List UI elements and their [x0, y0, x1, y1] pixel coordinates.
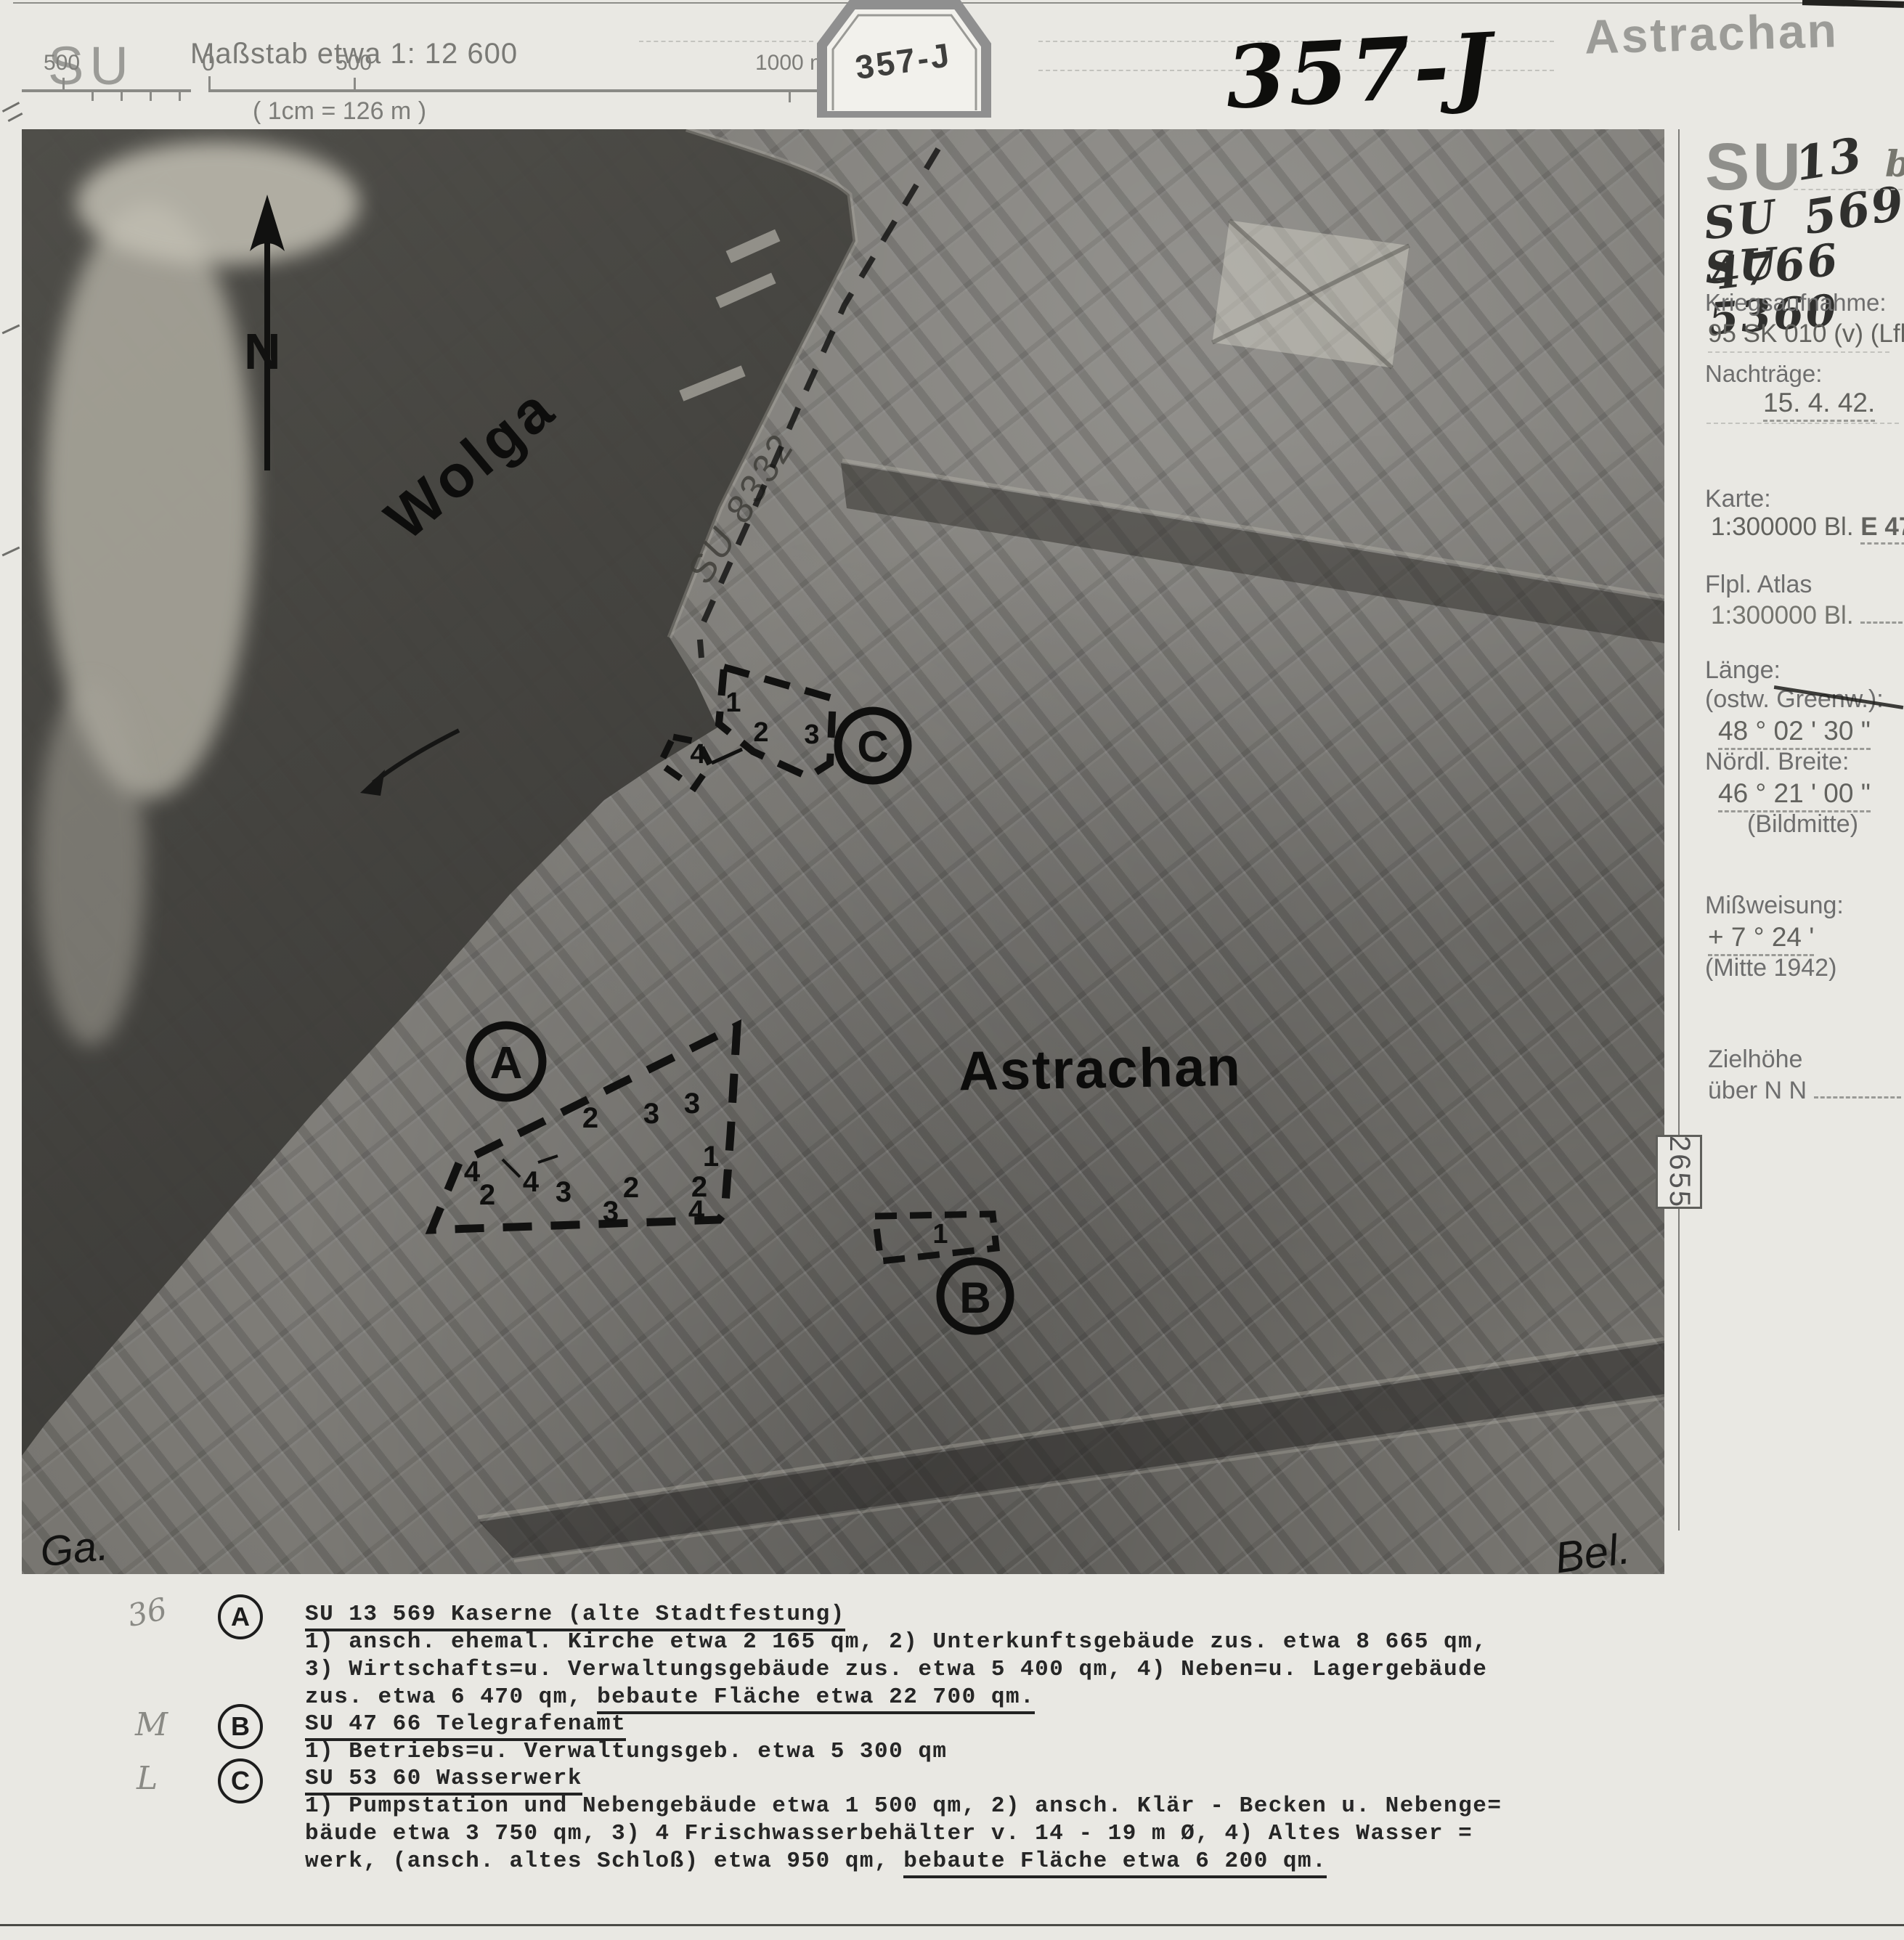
- area-a-number: 1: [703, 1141, 719, 1173]
- area-a-number: 3: [556, 1176, 571, 1208]
- area-a-number: 4: [523, 1166, 540, 1198]
- sidebar-divider: [1678, 129, 1680, 1531]
- north-letter: N: [244, 323, 281, 380]
- legend-circle-a: A: [218, 1594, 263, 1639]
- scale-tick: [789, 89, 791, 102]
- area-b-number: 1: [932, 1219, 948, 1250]
- scale-tick: [179, 89, 181, 101]
- canal-lower-bank: [514, 1398, 1664, 1561]
- scale-tick: [121, 89, 123, 101]
- area-c-number: 3: [804, 720, 819, 750]
- zielhoehe-blank: [1814, 1075, 1901, 1099]
- film-number-box: 2655: [1656, 1135, 1702, 1209]
- area-a-pointer: [538, 1156, 558, 1162]
- karte-line: 1:300000 Bl.: [1711, 513, 1854, 541]
- sheet-title: Astrachan: [1584, 2, 1839, 64]
- scale-tick: [62, 78, 65, 92]
- area-c-number: 4: [690, 739, 705, 770]
- scale-label-500-right: 500: [335, 51, 372, 76]
- scale-bar-right-segment: [209, 89, 819, 92]
- legend-c-line: 1) Pumpstation und Nebengebäude etwa 1 5…: [305, 1793, 1502, 1819]
- legend-margin-mark: L: [137, 1760, 158, 1797]
- legend-circle-c: C: [218, 1758, 263, 1804]
- margin-dash: [2, 547, 20, 557]
- scale-bar-left-segment: [22, 89, 191, 92]
- missweisung-value: + 7 ° 24 ': [1708, 922, 1814, 956]
- margin-dash: [2, 102, 20, 113]
- laenge-label: Länge:: [1705, 656, 1781, 685]
- scale-tick: [354, 78, 356, 92]
- area-a-letter: A: [490, 1038, 523, 1088]
- area-a-number: 4: [464, 1156, 481, 1188]
- missweisung-note: (Mitte 1942): [1705, 954, 1836, 982]
- legend-a-lastline: zus. etwa 6 470 qm, bebaute Fläche etwa …: [305, 1684, 1035, 1710]
- legend-a-title-text: SU 13 569 Kaserne (alte Stadtfestung): [305, 1602, 845, 1631]
- form-guide-dashes: [1706, 423, 1899, 424]
- legend-c-title-text: SU 53 60 Wasserwerk: [305, 1766, 582, 1796]
- stamp-tab: 357-J: [813, 0, 995, 118]
- karte-label: Karte:: [1705, 485, 1771, 513]
- zielhoehe-value: über N N: [1708, 1077, 1807, 1104]
- kriegsaufnahme-value: 95 SK 010 (v) (Lfl.4: [1708, 319, 1904, 349]
- legend-a-line: 3) Wirtschafts=u. Verwaltungsgebäude zus…: [305, 1657, 1487, 1682]
- karte-sheet: E 47: [1860, 513, 1904, 545]
- scale-tick: [150, 89, 152, 101]
- legend-b-line: 1) Betriebs=u. Verwaltungsgeb. etwa 5 30…: [305, 1739, 948, 1764]
- margin-dash: [8, 113, 23, 122]
- area-a-pointer: [503, 1159, 520, 1177]
- scale-label-0: 0: [202, 49, 215, 76]
- legend-letter-c: C: [231, 1766, 250, 1796]
- area-a-number: 2: [479, 1179, 495, 1211]
- park-square: [1212, 220, 1409, 367]
- legend-c-title: SU 53 60 Wasserwerk: [305, 1766, 582, 1791]
- form-guide-dashes: [639, 41, 813, 42]
- film-number: 2655: [1663, 1136, 1696, 1209]
- canal-lower: [479, 1343, 1664, 1558]
- legend-a-lastline-prefix: zus. etwa 6 470 qm,: [305, 1684, 597, 1710]
- legend-b-title: SU 47 66 Telegrafenamt: [305, 1711, 626, 1737]
- area-a-number: 2: [623, 1172, 639, 1204]
- canal-lower-bank: [478, 1339, 1664, 1517]
- canal-upper-bank: [842, 460, 1664, 597]
- sandbank: [36, 682, 145, 1046]
- area-a-number: 3: [643, 1098, 659, 1130]
- zielhoehe-label: Zielhöhe: [1708, 1046, 1802, 1074]
- scale-tick: [208, 76, 211, 92]
- legend-circle-b: B: [218, 1704, 263, 1749]
- legend-c-line: bäude etwa 3 750 qm, 3) 4 Frischwasserbe…: [305, 1821, 1473, 1846]
- area-a-number: 3: [684, 1088, 700, 1120]
- legend-margin-mark: 36: [124, 1591, 169, 1634]
- form-guide-dashes: [1708, 351, 1889, 353]
- nachtraege-label: Nachträge:: [1705, 360, 1822, 388]
- scale-tick: [91, 89, 94, 101]
- area-a-number: 3: [603, 1196, 619, 1228]
- signature-right: Bel.: [1552, 1524, 1633, 1574]
- flpl-atlas-value: 1:300000 Bl.: [1711, 598, 1904, 630]
- area-c-number: 1: [725, 688, 741, 718]
- nachtraege-value: 15. 4. 42.: [1763, 388, 1875, 422]
- flpl-blank: [1860, 598, 1904, 624]
- area-c-letter: C: [857, 722, 888, 771]
- laenge-value: 48 ° 02 ' 30 ": [1718, 716, 1871, 750]
- area-b-letter: B: [959, 1273, 990, 1322]
- bildmitte-note: (Bildmitte): [1747, 810, 1858, 839]
- legend-a-line: 1) ansch. ehemal. Kirche etwa 2 165 qm, …: [305, 1629, 1487, 1655]
- kriegsaufnahme-label: Kriegsaufnahme:: [1705, 289, 1886, 317]
- legend-letter-b: B: [231, 1711, 250, 1742]
- area-c-number: 2: [753, 717, 768, 748]
- legend-a-lastline-underlined: bebaute Fläche etwa 22 700 qm.: [597, 1684, 1035, 1714]
- legend-c-lastline: werk, (ansch. altes Schloß) etwa 950 qm,…: [305, 1849, 1327, 1874]
- breite-value: 46 ° 21 ' 00 ": [1718, 778, 1871, 812]
- margin-dash: [2, 325, 20, 335]
- sandbank: [76, 142, 359, 265]
- area-a-number: 2: [582, 1102, 598, 1134]
- bottom-rule: [0, 1924, 1904, 1926]
- area-a-number: 4: [688, 1195, 705, 1227]
- legend-margin-mark: M: [135, 1706, 168, 1743]
- signature-left: Ga.: [38, 1522, 110, 1574]
- canal-upper: [841, 463, 1664, 643]
- legend-c-lastline-prefix: werk, (ansch. altes Schloß) etwa 950 qm,: [305, 1849, 903, 1874]
- breite-label: Nördl. Breite:: [1705, 748, 1849, 776]
- legend-letter-a: A: [231, 1602, 250, 1632]
- legend-a-title: SU 13 569 Kaserne (alte Stadtfestung): [305, 1602, 845, 1627]
- city-label: Astrachan: [958, 1036, 1242, 1103]
- scale-note: ( 1cm = 126 m ): [253, 97, 426, 126]
- karte-value: 1:300000 Bl. E 47: [1711, 513, 1904, 542]
- flpl-line: 1:300000 Bl.: [1711, 601, 1854, 629]
- handwritten-sheet-number: 357-J: [1224, 13, 1498, 128]
- missweisung-label: Mißweisung:: [1705, 892, 1844, 920]
- zielhoehe-line: über N N m: [1708, 1075, 1904, 1105]
- scale-label-500-left: 500: [44, 51, 80, 76]
- legend-c-lastline-underlined: bebaute Fläche etwa 6 200 qm.: [903, 1849, 1327, 1878]
- flpl-atlas-label: Flpl. Atlas: [1705, 571, 1812, 599]
- aerial-photo: N Wolga SU 8332 1 2 3 4 C A 2 3 3 1 4 4 …: [22, 129, 1664, 1574]
- legend-b-title-text: SU 47 66 Telegrafenamt: [305, 1711, 626, 1741]
- area-c4-connector: [712, 749, 742, 763]
